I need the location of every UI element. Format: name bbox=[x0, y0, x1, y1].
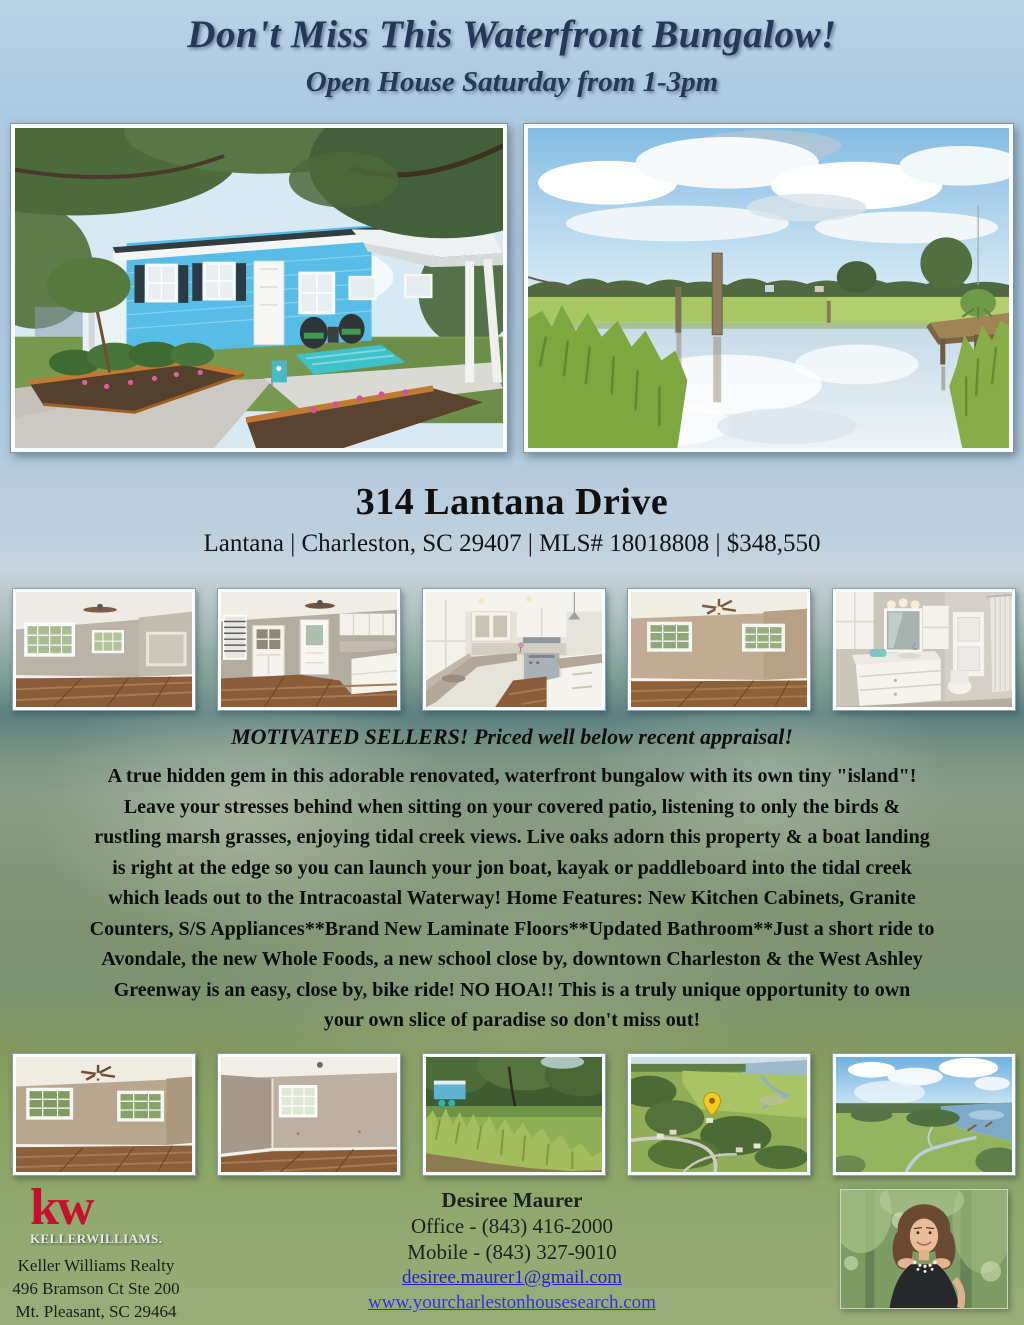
description-line: your own slice of paradise so don't miss… bbox=[12, 1005, 1012, 1036]
description-line: Avondale, the new Whole Foods, a new sch… bbox=[12, 944, 1012, 975]
description-line: Counters, S/S Appliances**Brand New Lami… bbox=[12, 914, 1012, 945]
thumbnail-bathroom bbox=[832, 588, 1016, 711]
listing-description: A true hidden gem in this adorable renov… bbox=[12, 761, 1012, 1036]
description-line: Greenway is an easy, close by, bike ride… bbox=[12, 975, 1012, 1006]
real-estate-flyer: Don't Miss This Waterfront Bungalow! Ope… bbox=[0, 0, 1024, 1325]
description-line: rustling marsh grasses, enjoying tidal c… bbox=[12, 822, 1012, 853]
thumbnail-bedroom-2 bbox=[12, 1053, 196, 1176]
thumbnail-living-room bbox=[12, 588, 196, 711]
keller-williams-logo: kw KELLERWILLIAMS. bbox=[30, 1186, 162, 1247]
flyer-title: Don't Miss This Waterfront Bungalow! bbox=[0, 12, 1024, 57]
description-line: Leave your stresses behind when sitting … bbox=[12, 792, 1012, 823]
open-house-subtitle: Open House Saturday from 1-3pm bbox=[0, 66, 1024, 99]
kw-logo-icon: kw bbox=[30, 1186, 162, 1230]
agent-headshot bbox=[840, 1189, 1008, 1309]
agent-website-link[interactable]: www.yourcharlestonhousesearch.com bbox=[312, 1290, 712, 1315]
kw-logo-wordmark: KELLERWILLIAMS. bbox=[30, 1231, 162, 1247]
brokerage-name: Keller Williams Realty bbox=[6, 1254, 186, 1277]
description-line: is right at the edge so you can launch y… bbox=[12, 853, 1012, 884]
agent-name: Desiree Maurer bbox=[312, 1188, 712, 1213]
thumbnail-bedroom-1 bbox=[627, 588, 811, 711]
agent-mobile-phone: Mobile - (843) 327-9010 bbox=[312, 1239, 712, 1265]
brokerage-city: Mt. Pleasant, SC 29464 bbox=[6, 1300, 186, 1323]
listing-info-line: Lantana | Charleston, SC 29407 | MLS# 18… bbox=[0, 530, 1024, 558]
thumbnail-aerial-location-pin bbox=[627, 1053, 811, 1176]
thumbnail-bedroom-3 bbox=[217, 1053, 401, 1176]
thumbnail-kitchen bbox=[422, 588, 606, 711]
agent-email-link[interactable]: desiree.maurer1@gmail.com bbox=[312, 1265, 712, 1290]
listing-address: 314 Lantana Drive bbox=[0, 480, 1024, 524]
photo-house-exterior bbox=[10, 123, 508, 453]
description-line: which leads out to the Intracoastal Wate… bbox=[12, 883, 1012, 914]
thumbnail-aerial-marsh-river bbox=[832, 1053, 1016, 1176]
motivated-sellers-headline: MOTIVATED SELLERS! Priced well below rec… bbox=[0, 724, 1024, 750]
agent-office-phone: Office - (843) 416-2000 bbox=[312, 1213, 712, 1239]
agent-contact-block: Desiree Maurer Office - (843) 416-2000 M… bbox=[312, 1188, 712, 1315]
photo-marsh-view bbox=[523, 123, 1014, 453]
thumbnail-backyard-marsh bbox=[422, 1053, 606, 1176]
description-line: A true hidden gem in this adorable renov… bbox=[12, 761, 1012, 792]
brokerage-address: Keller Williams Realty 496 Bramson Ct St… bbox=[6, 1254, 186, 1323]
brokerage-street: 496 Bramson Ct Ste 200 bbox=[6, 1277, 186, 1300]
thumbnail-dining-area bbox=[217, 588, 401, 711]
